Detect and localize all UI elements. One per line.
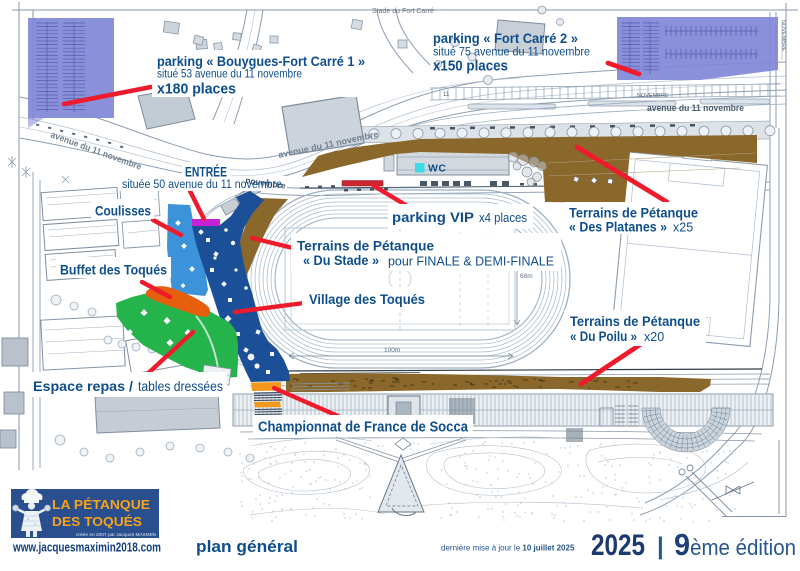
svg-text:x25: x25 bbox=[673, 221, 693, 235]
svg-text:x180 places: x180 places bbox=[157, 81, 236, 98]
svg-text:ENTRÉE: ENTRÉE bbox=[185, 164, 227, 180]
svg-text:« Des Platanes »: « Des Platanes » bbox=[569, 220, 667, 235]
svg-text:DES TOQUÉS: DES TOQUÉS bbox=[52, 514, 142, 529]
svg-text:parking VIP: parking VIP bbox=[392, 210, 474, 225]
svg-text:parking « Bouygues-Fort Carré: parking « Bouygues-Fort Carré 1 » bbox=[157, 54, 365, 69]
svg-text:|: | bbox=[657, 533, 664, 560]
svg-text:Terrains de Pétanque: Terrains de Pétanque bbox=[569, 206, 698, 221]
svg-text:située 50 avenue du 11 novembr: située 50 avenue du 11 novembre bbox=[122, 179, 282, 191]
svg-text:x4 places: x4 places bbox=[479, 210, 527, 225]
svg-text:Espace repas /: Espace repas / bbox=[33, 378, 133, 394]
svg-text:68m: 68m bbox=[520, 273, 533, 280]
svg-text:Village des Toqués: Village des Toqués bbox=[309, 291, 425, 307]
svg-text:Buffet des Toqués: Buffet des Toqués bbox=[60, 262, 167, 278]
svg-text:dernière mise à jour le 10 jui: dernière mise à jour le 10 juillet 2025 bbox=[441, 544, 575, 553]
svg-text:pour FINALE & DEMI-FINALE: pour FINALE & DEMI-FINALE bbox=[388, 254, 554, 269]
svg-text:Terrains de Pétanque: Terrains de Pétanque bbox=[570, 314, 700, 329]
svg-text:Stade du Fort Carré: Stade du Fort Carré bbox=[372, 8, 434, 15]
svg-text:parking « Fort Carré 2 »: parking « Fort Carré 2 » bbox=[433, 31, 578, 46]
svg-text:Terrains de Pétanque: Terrains de Pétanque bbox=[297, 239, 434, 254]
svg-text:x20: x20 bbox=[644, 330, 664, 344]
svg-text:situé 53 avenue du 11 novembre: situé 53 avenue du 11 novembre bbox=[157, 69, 302, 81]
svg-text:avenue du 11 novembre: avenue du 11 novembre bbox=[647, 103, 744, 114]
svg-text:LA PÉTANQUE: LA PÉTANQUE bbox=[52, 497, 150, 512]
svg-text:Coulisses: Coulisses bbox=[95, 203, 151, 219]
svg-text:www.jacquesmaximin2018.com: www.jacquesmaximin2018.com bbox=[12, 541, 161, 555]
svg-text:tables dressées: tables dressées bbox=[138, 378, 223, 394]
svg-text:2025: 2025 bbox=[591, 529, 645, 562]
svg-text:créée en 2007 par Jacques MAXI: créée en 2007 par Jacques MAXIMIN bbox=[76, 532, 157, 538]
svg-text:WC: WC bbox=[428, 163, 447, 175]
svg-text:« Du Poilu »: « Du Poilu » bbox=[570, 329, 637, 344]
svg-text:100m: 100m bbox=[384, 347, 400, 354]
svg-text:« Du Stade »: « Du Stade » bbox=[303, 253, 379, 268]
svg-text:NOVEMBRE: NOVEMBRE bbox=[780, 20, 786, 52]
svg-text:plan général: plan général bbox=[196, 538, 298, 556]
svg-text:9ème édition: 9ème édition bbox=[674, 527, 796, 562]
svg-text:NOVEMBRE: NOVEMBRE bbox=[637, 93, 669, 99]
svg-text:Championnat de France de Socca: Championnat de France de Socca bbox=[258, 420, 469, 436]
svg-text:x150 places: x150 places bbox=[433, 58, 508, 75]
svg-text:11: 11 bbox=[443, 92, 450, 98]
